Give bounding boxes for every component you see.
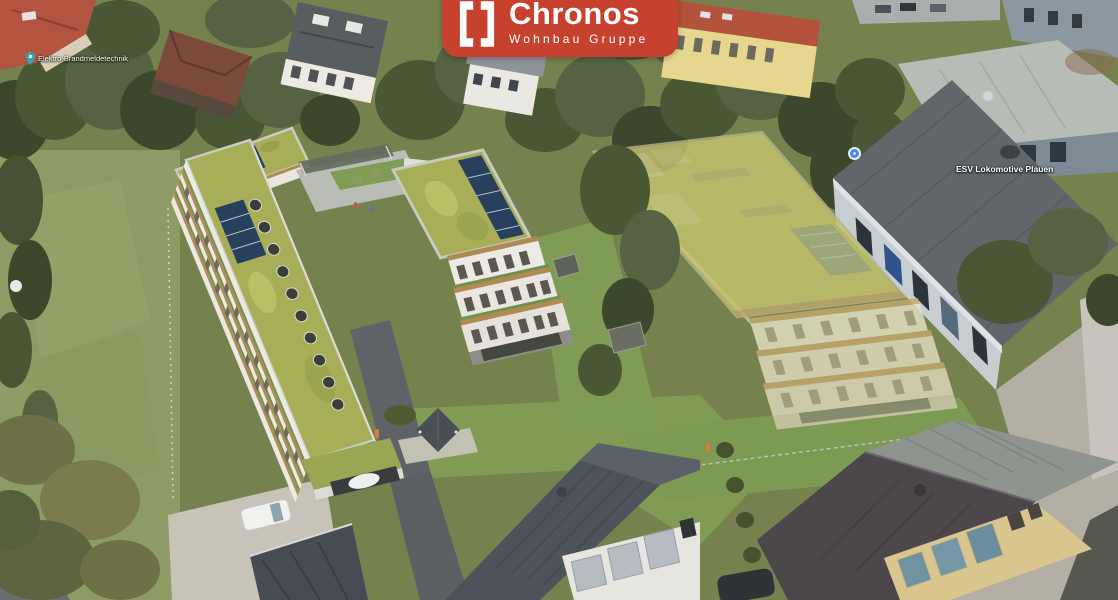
tree [1028,208,1108,276]
map-label-left-text: Elektro-Brandmeldetechnik [38,54,128,63]
hedge [736,512,754,528]
parked-car [875,5,891,13]
window [1024,8,1034,22]
logo-text: Chronos Wohnbau Gruppe [509,0,648,46]
logo-brand: Chronos [509,0,648,29]
window [1048,11,1058,25]
scene-canvas [0,0,1118,600]
window [1072,14,1082,28]
logo-tagline: Wohnbau Gruppe [509,32,648,46]
map-label-right: ESV Lokomotive Plauen [956,164,1053,174]
bush [384,405,416,425]
hedge [743,547,761,563]
hedge [716,442,734,458]
parked-car [930,4,946,12]
tree [620,210,680,290]
hedge [726,477,744,493]
aerial-render-image: Elektro-Brandmeldetechnik ESV Lokomotive… [0,0,1118,600]
parked-car [900,3,916,11]
bracket-frame-icon [458,1,496,47]
parasol [10,280,22,292]
map-label-right-text: ESV Lokomotive Plauen [956,164,1053,174]
logo-badge: Chronos Wohnbau Gruppe [442,0,678,57]
place-marker-icon [848,147,861,160]
parking-strip [852,0,1000,24]
map-pin-icon [26,52,35,65]
map-label-left: Elektro-Brandmeldetechnik [26,52,128,65]
